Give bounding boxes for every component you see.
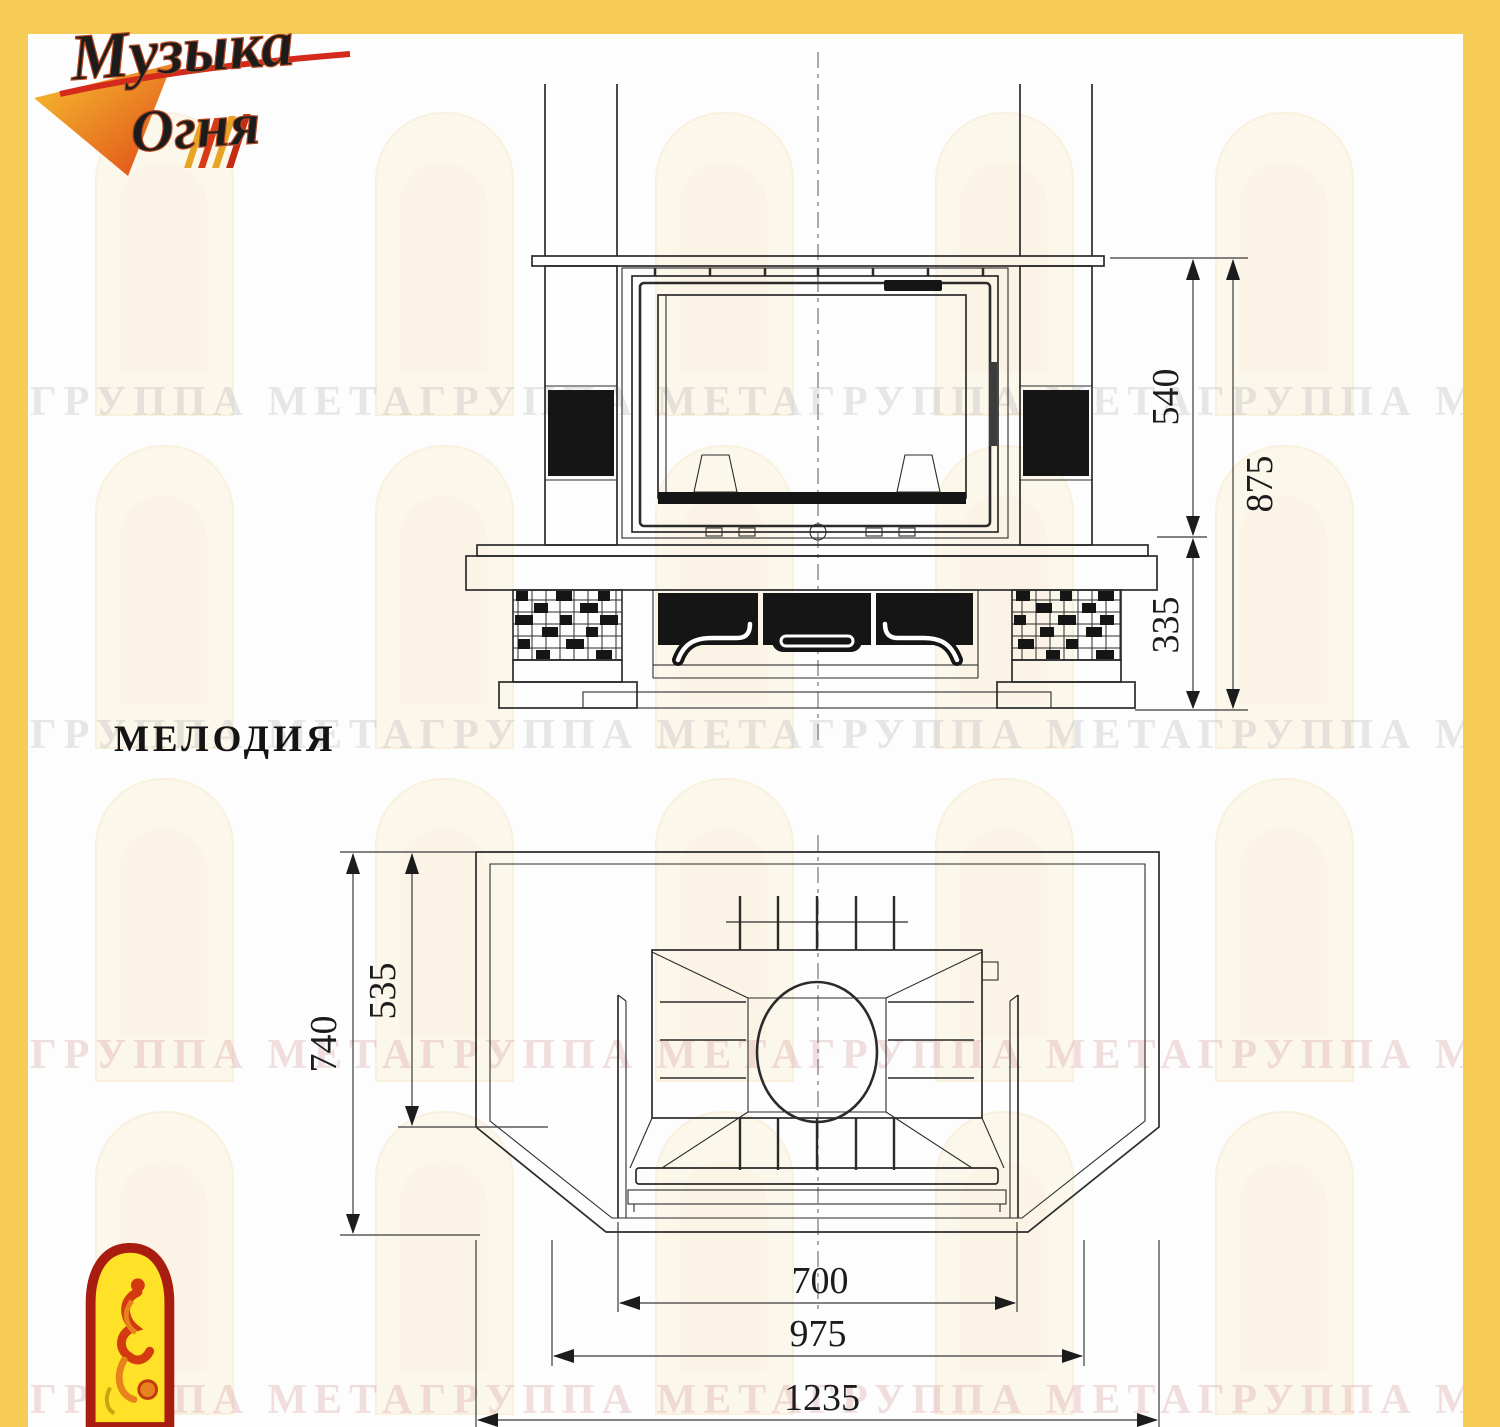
dim-875: 875: [1226, 259, 1281, 709]
frame-band-right: [1463, 0, 1500, 1427]
dim-335: 335: [1145, 538, 1200, 709]
center-panels: [653, 590, 978, 665]
fireplace-technical-drawing: 540 335 875: [0, 0, 1500, 1427]
dim-535-label: 535: [362, 963, 404, 1020]
door-glass: [658, 295, 966, 498]
grate-bars-bottom: [740, 1118, 894, 1170]
right-brick-pier: [1012, 590, 1121, 660]
dim-875-label: 875: [1239, 456, 1281, 513]
plan-dimensions-left: 740 535: [303, 852, 548, 1235]
andiron-left: [694, 455, 737, 492]
dim-535: 535: [362, 853, 419, 1126]
dim-700-label: 700: [792, 1260, 849, 1302]
front-view: 540 335 875: [466, 52, 1281, 740]
page: { "page": {"background": "#ffffff", "fra…: [0, 0, 1500, 1427]
mantel-shelf: [466, 545, 1157, 590]
dim-540-label: 540: [1145, 369, 1187, 426]
firebird-emblem: [80, 1240, 180, 1427]
dim-540: 540: [1145, 259, 1200, 536]
ornament-center: [772, 630, 862, 652]
front-dimensions: 540 335 875: [1110, 258, 1281, 710]
brand-logo: Музыка Огня: [20, 2, 380, 192]
page-title: МЕЛОДИЯ: [114, 718, 337, 761]
logo-word-2: Огня: [128, 90, 262, 165]
plan-view: 740 535 700: [303, 835, 1159, 1427]
left-brick-pier: [513, 590, 622, 660]
base: [499, 590, 1135, 708]
insert-side-tab: [982, 962, 998, 980]
left-column: [545, 266, 617, 545]
front-rail: [636, 1168, 998, 1184]
firebox-insert-top: [628, 896, 1006, 1212]
door-sill: [658, 492, 966, 504]
right-column: [1020, 266, 1092, 545]
vent-ticks: [655, 268, 983, 276]
firebox-door: [622, 268, 1008, 540]
dim-1235-label: 1235: [784, 1377, 860, 1419]
andiron-right: [897, 455, 940, 492]
dim-740: 740: [303, 853, 360, 1234]
dim-700: 700: [618, 1222, 1017, 1312]
door-handle: [989, 362, 997, 446]
flue-opening: [757, 982, 877, 1122]
brand-plate: [884, 280, 942, 291]
logo-word-1: Музыка: [67, 7, 296, 95]
insert-ribs: [660, 1002, 974, 1078]
dim-975-label: 975: [790, 1313, 847, 1355]
grate-bars-top: [726, 896, 908, 950]
dim-335-label: 335: [1145, 597, 1187, 654]
frame-band-left: [0, 0, 28, 1427]
dim-740-label: 740: [303, 1016, 345, 1073]
plinth: [499, 660, 1135, 708]
fender-rail: [628, 1190, 1006, 1204]
